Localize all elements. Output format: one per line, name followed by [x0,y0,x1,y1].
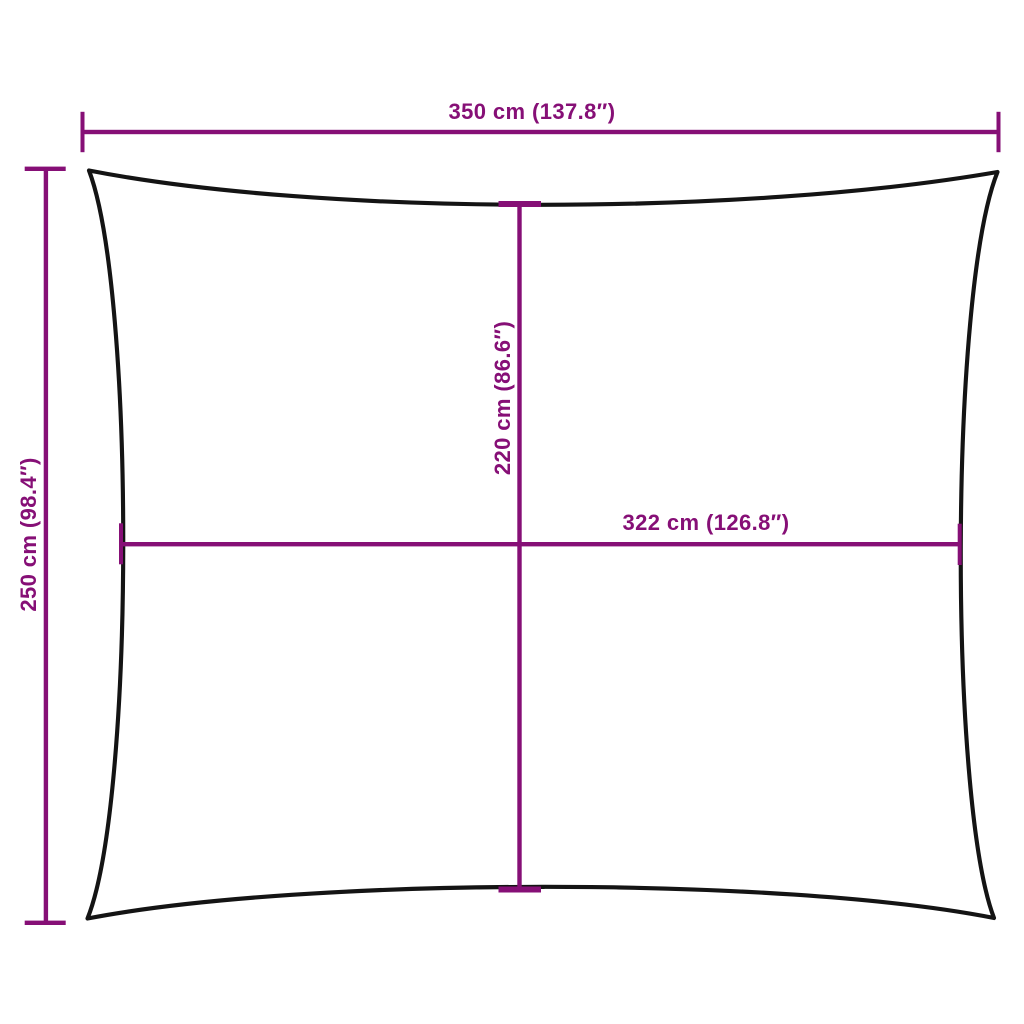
svg-text:250 cm (98.4″): 250 cm (98.4″) [16,457,41,611]
svg-text:350 cm (137.8″): 350 cm (137.8″) [449,99,616,124]
svg-text:322 cm (126.8″): 322 cm (126.8″) [623,510,790,535]
svg-text:220 cm (86.6″): 220 cm (86.6″) [490,321,515,475]
